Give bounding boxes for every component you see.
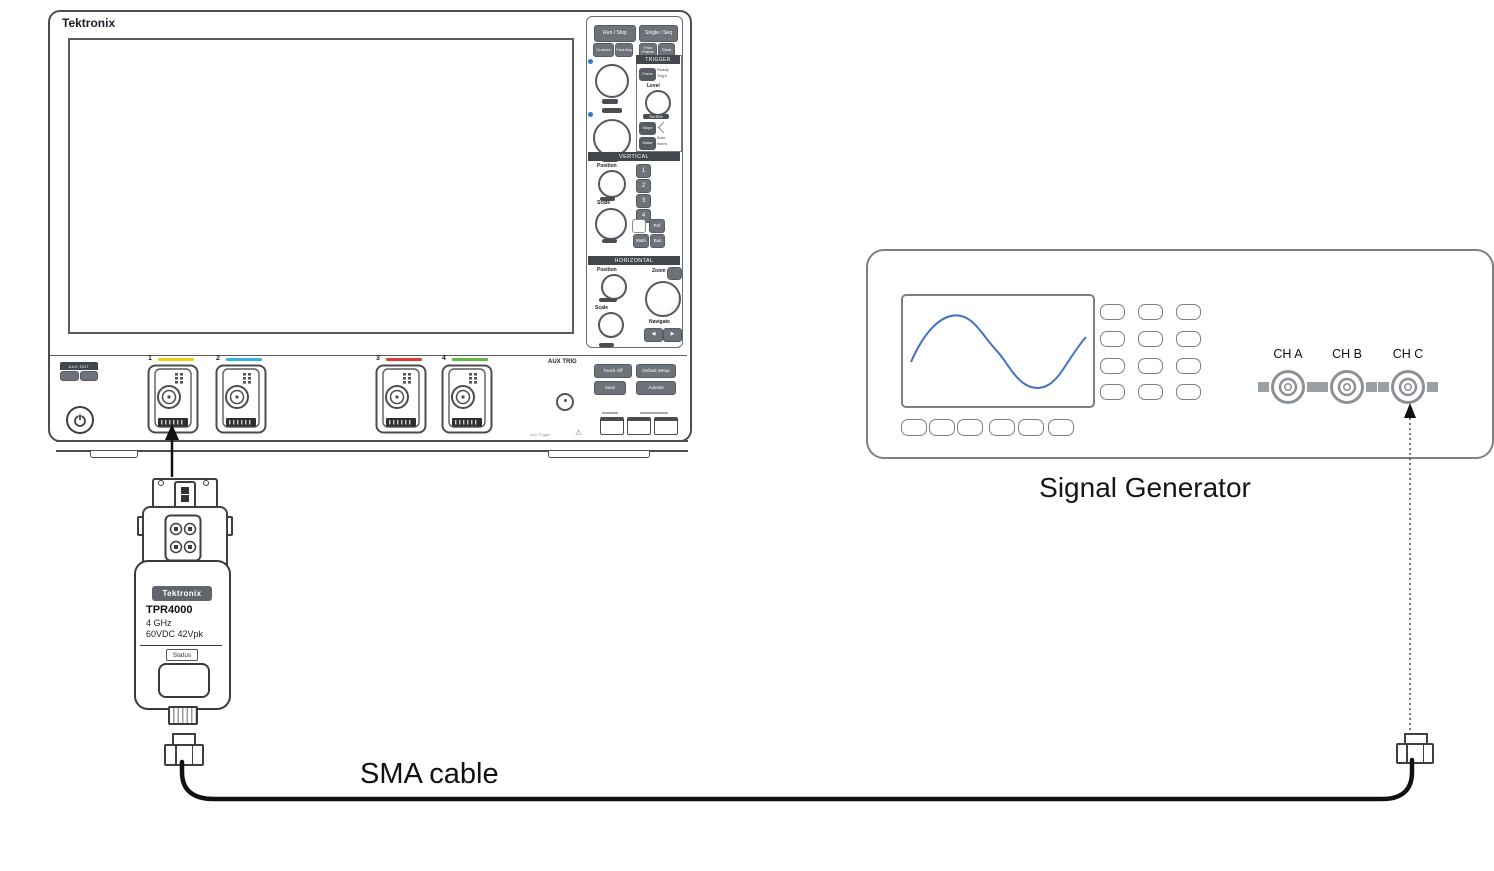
aux-out-badge-label: AUX OUT [60,362,98,370]
horizontal-scale-label: Scale [595,306,608,311]
vertical-position-knob[interactable] [598,170,626,198]
trigger-header: TRIGGER [636,55,680,64]
probe-model: TPR4000 [146,604,192,616]
horizontal-position-label: Position [597,268,617,273]
power-button[interactable] [66,406,94,434]
probe-brand-logo: Tektronix [152,586,212,601]
channel-3-button[interactable]: 3 [636,194,651,208]
vertical-scale-knob[interactable] [595,208,627,240]
usb-label-mark-1 [602,412,618,414]
force-button[interactable]: Force [639,68,656,81]
usb-label-mark-2 [640,412,668,414]
oscilloscope-brand-logo: Tektronix [62,16,115,30]
keypad-button[interactable] [1100,304,1125,320]
usb-port-2[interactable] [627,417,651,435]
touch-off-button[interactable]: Touch Off [594,364,632,378]
horizontal-position-knob[interactable] [601,274,627,300]
sine-wave [903,296,1093,406]
aux-trig-bnc[interactable] [556,393,574,411]
probe-connector-screw-right [203,480,209,486]
aux-out-right-key[interactable] [80,371,99,381]
knob-a-secondary-pill [602,108,622,113]
ch-a-bnc[interactable] [1258,365,1318,409]
trigger-set50-pill: Set 50% [643,114,669,119]
keypad-button[interactable] [1176,304,1201,320]
channel-1-number: 1 [148,355,152,362]
probe-bandwidth: 4 GHz [146,618,172,628]
keypad-button[interactable] [1176,331,1201,347]
aux-trig-label: AUX TRIG [548,359,577,365]
soft-key[interactable] [989,419,1015,436]
slope-button[interactable]: Slope [639,122,656,135]
keypad-button[interactable] [1138,331,1163,347]
knob-a-indicator [588,59,593,64]
ref-button[interactable]: Ref [649,219,665,233]
channel-3-color-bar [386,358,422,361]
keypad-button[interactable] [1138,358,1163,374]
generator-display [901,294,1095,408]
multipurpose-knob-a[interactable] [595,64,629,98]
connection-diagram: Tektronix Run / Stop Single / Seq Cursor… [0,0,1494,871]
channel-2-input[interactable] [215,364,267,434]
fast-acq-button[interactable]: Fast Acq [615,43,633,57]
channel-2-button[interactable]: 2 [636,179,651,193]
run-stop-button[interactable]: Run / Stop [594,25,636,42]
channel-3-number: 3 [376,355,380,362]
pan-zoom-knob[interactable] [645,281,681,317]
navigate-right-button[interactable]: ▶ [663,328,682,342]
channel-1-input[interactable] [147,364,199,434]
keypad-button[interactable] [1176,358,1201,374]
vertical-scale-label: Scale [597,201,610,206]
blank-white-button[interactable] [632,219,646,233]
vertical-position-label: Position [597,164,617,169]
vertical-header: VERTICAL [588,152,680,161]
trigger-mode-button[interactable]: Mode [639,137,656,150]
channel-1-color-bar [158,358,194,361]
channel-4-number: 4 [442,355,446,362]
ch-b-label: CH B [1327,348,1367,361]
channel-2-number: 2 [216,355,220,362]
scope-base-line-1 [56,440,688,442]
probe-status-window [158,663,210,698]
channel-3-input[interactable] [375,364,427,434]
scope-foot-right [548,451,650,458]
aux-out-badge: AUX OUT [60,362,98,380]
horizontal-scale-knob[interactable] [598,312,624,338]
knob-b-indicator [588,112,593,117]
channel-2-color-bar [226,358,262,361]
sma-connector-left [164,744,204,766]
probe-rating: 60VDC 42Vpk [146,629,203,639]
signal-generator-caption: Signal Generator [1020,472,1270,504]
usb-port-1[interactable] [600,417,624,435]
ch-c-label: CH C [1388,348,1428,361]
single-seq-button[interactable]: Single / Seq [639,25,678,42]
soft-key[interactable] [1048,419,1074,436]
probe-adjust-block [164,514,202,562]
channel-4-input[interactable] [441,364,493,434]
ch-b-bnc[interactable] [1317,365,1377,409]
probe-divider [140,645,222,646]
usb-port-3[interactable] [654,417,678,435]
soft-key[interactable] [1018,419,1044,436]
trigger-norm-label: Norm [657,142,667,147]
probe-connector-screw-left [158,480,164,486]
sma-cable-label: SMA cable [360,758,499,791]
trigger-level-label: Level [647,84,660,89]
ch-a-label: CH A [1268,348,1308,361]
oscilloscope-screen[interactable] [68,38,574,334]
cursors-button[interactable]: Cursors [593,43,614,57]
soft-key[interactable] [929,419,955,436]
keypad-button[interactable] [1100,358,1125,374]
warning-icon: ⚠ [575,429,582,437]
keypad-button[interactable] [1138,384,1163,400]
ch-c-bnc[interactable] [1378,365,1438,409]
scope-foot-left [90,451,138,458]
probe-sma-connector [168,706,198,725]
keypad-button[interactable] [1100,384,1125,400]
trigger-ready-label: Ready [657,68,669,73]
aux-trigger-note: Aux Trigger [530,433,550,438]
navigate-label: Navigate [649,320,670,325]
bezel-separator [50,355,687,356]
horizontal-header: HORIZONTAL [588,256,680,265]
channel-1-button[interactable]: 1 [636,164,651,178]
knob-a-label-pill [602,99,618,104]
zoom-button[interactable] [667,267,682,280]
trigger-auto-label: Auto [657,136,665,141]
zoom-label: Zoom [652,269,666,274]
trigger-level-knob[interactable] [645,90,671,116]
soft-key[interactable] [957,419,983,436]
keypad-button[interactable] [1176,384,1201,400]
aux-out-left-key[interactable] [60,371,79,381]
trigger-trigd-label: Trig'd [657,74,667,79]
horizontal-position-pill [599,298,617,302]
keypad-button[interactable] [1138,304,1163,320]
soft-key[interactable] [901,419,927,436]
probe-status-label: Status [166,649,198,661]
power-icon [72,412,88,428]
sma-connector-right [1396,743,1434,764]
keypad-button[interactable] [1100,331,1125,347]
default-setup-button[interactable]: Default Setup [636,364,676,378]
horizontal-scale-pill [599,343,614,347]
save-button[interactable]: Save [594,381,626,395]
bus-button[interactable]: Bus [650,234,665,248]
vertical-scale-pill [602,239,617,243]
autoset-button[interactable]: Autoset [636,381,676,395]
channel-4-color-bar [452,358,488,361]
navigate-left-button[interactable]: ◀ [644,328,663,342]
math-button[interactable]: Math [633,234,649,248]
